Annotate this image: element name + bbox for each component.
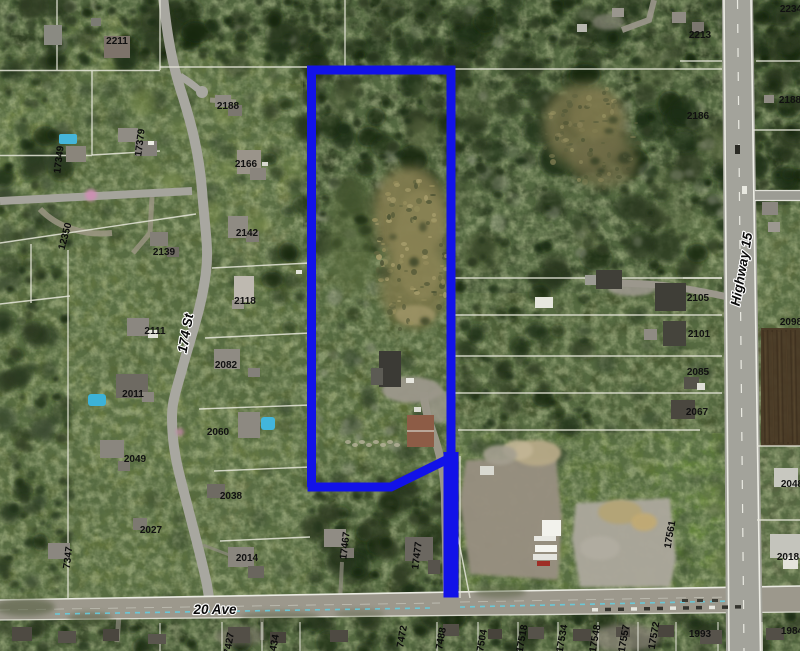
svg-text:2211: 2211 xyxy=(106,36,128,47)
svg-text:2060: 2060 xyxy=(207,427,230,438)
svg-text:2082: 2082 xyxy=(215,360,238,371)
svg-text:1993: 1993 xyxy=(689,629,712,640)
svg-text:2014: 2014 xyxy=(236,553,259,564)
svg-text:2139: 2139 xyxy=(153,247,176,258)
svg-text:1984: 1984 xyxy=(781,626,800,637)
svg-text:2048: 2048 xyxy=(781,479,800,490)
svg-text:20 Ave: 20 Ave xyxy=(192,602,237,617)
svg-text:2111: 2111 xyxy=(144,326,166,337)
svg-text:2098: 2098 xyxy=(780,317,800,328)
svg-text:2142: 2142 xyxy=(236,228,259,239)
svg-text:2085: 2085 xyxy=(687,367,710,378)
svg-text:2038: 2038 xyxy=(220,491,243,502)
svg-text:2234: 2234 xyxy=(780,4,800,15)
svg-text:2166: 2166 xyxy=(235,159,258,170)
svg-text:2049: 2049 xyxy=(124,454,147,465)
svg-text:2067: 2067 xyxy=(686,407,709,418)
svg-text:2118: 2118 xyxy=(234,296,256,307)
svg-text:2188: 2188 xyxy=(217,101,240,112)
svg-text:2027: 2027 xyxy=(140,525,163,536)
svg-text:2011: 2011 xyxy=(122,389,144,400)
svg-text:2101: 2101 xyxy=(688,329,711,340)
svg-text:2213: 2213 xyxy=(689,30,712,41)
svg-text:2188: 2188 xyxy=(779,95,800,106)
svg-text:2186: 2186 xyxy=(687,111,710,122)
svg-text:2018: 2018 xyxy=(777,552,800,563)
svg-text:2105: 2105 xyxy=(687,293,710,304)
